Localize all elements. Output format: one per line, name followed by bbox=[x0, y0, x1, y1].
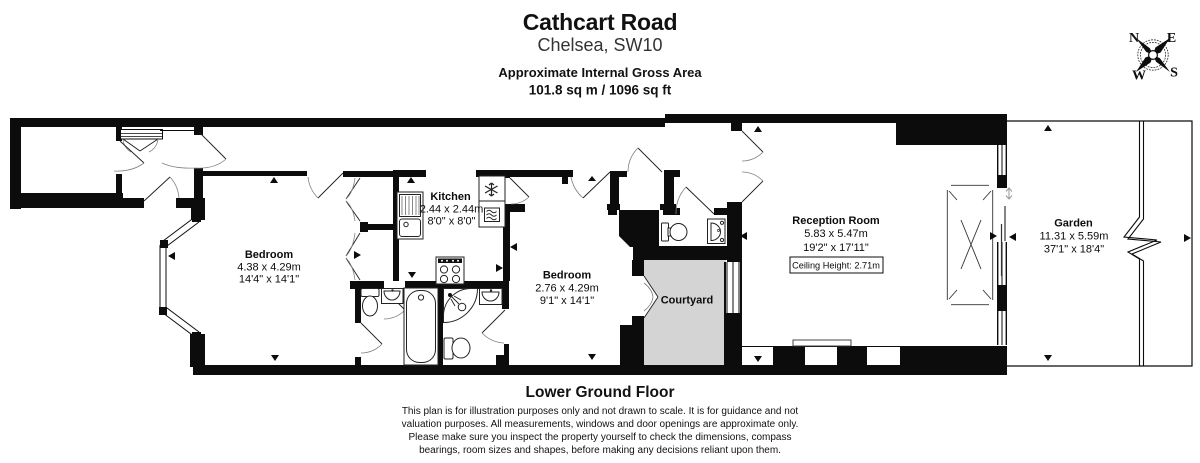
svg-text:Kitchen: Kitchen bbox=[430, 191, 471, 203]
svg-text:W: W bbox=[1132, 69, 1146, 84]
svg-text:bearings, room sizes and shape: bearings, room sizes and shapes, before … bbox=[419, 445, 781, 456]
svg-text:Please make sure you inspect t: Please make sure you inspect the propert… bbox=[409, 432, 792, 443]
svg-text:11.31 x 5.59m: 11.31 x 5.59m bbox=[1040, 231, 1109, 243]
svg-text:101.8 sq m / 1096 sq ft: 101.8 sq m / 1096 sq ft bbox=[529, 83, 672, 98]
svg-text:5.83 x 5.47m: 5.83 x 5.47m bbox=[804, 228, 868, 240]
svg-text:valuation purposes. All measur: valuation purposes. All measurements, wi… bbox=[402, 419, 799, 430]
svg-text:This plan is for illustration: This plan is for illustration purposes o… bbox=[402, 406, 799, 417]
svg-text:2.76 x 4.29m: 2.76 x 4.29m bbox=[535, 282, 599, 294]
svg-text:Courtyard: Courtyard bbox=[661, 295, 714, 307]
svg-text:4.38 x 4.29m: 4.38 x 4.29m bbox=[237, 262, 301, 274]
svg-text:E: E bbox=[1167, 31, 1176, 46]
svg-text:Lower Ground Floor: Lower Ground Floor bbox=[526, 384, 675, 401]
svg-text:Cathcart Road: Cathcart Road bbox=[523, 9, 678, 35]
svg-text:14'4" x 14'1": 14'4" x 14'1" bbox=[239, 274, 299, 286]
svg-text:37'1" x 18'4": 37'1" x 18'4" bbox=[1044, 244, 1104, 256]
svg-text:Bedroom: Bedroom bbox=[543, 270, 592, 282]
svg-text:Garden: Garden bbox=[1054, 218, 1093, 230]
svg-text:N: N bbox=[1129, 31, 1139, 46]
svg-text:Chelsea, SW10: Chelsea, SW10 bbox=[537, 35, 662, 55]
svg-text:2.44 x 2.44m: 2.44 x 2.44m bbox=[420, 204, 484, 216]
svg-text:9'1" x 14'1": 9'1" x 14'1" bbox=[540, 295, 594, 307]
svg-text:Bedroom: Bedroom bbox=[245, 249, 294, 261]
svg-text:Reception Room: Reception Room bbox=[792, 215, 880, 227]
svg-text:Approximate Internal Gross Are: Approximate Internal Gross Area bbox=[498, 65, 702, 80]
svg-text:Ceiling Height: 2.71m: Ceiling Height: 2.71m bbox=[792, 261, 880, 271]
svg-text:8'0" x 8'0": 8'0" x 8'0" bbox=[427, 216, 475, 228]
svg-text:19'2" x 17'11": 19'2" x 17'11" bbox=[803, 242, 869, 254]
svg-text:S: S bbox=[1170, 66, 1178, 81]
